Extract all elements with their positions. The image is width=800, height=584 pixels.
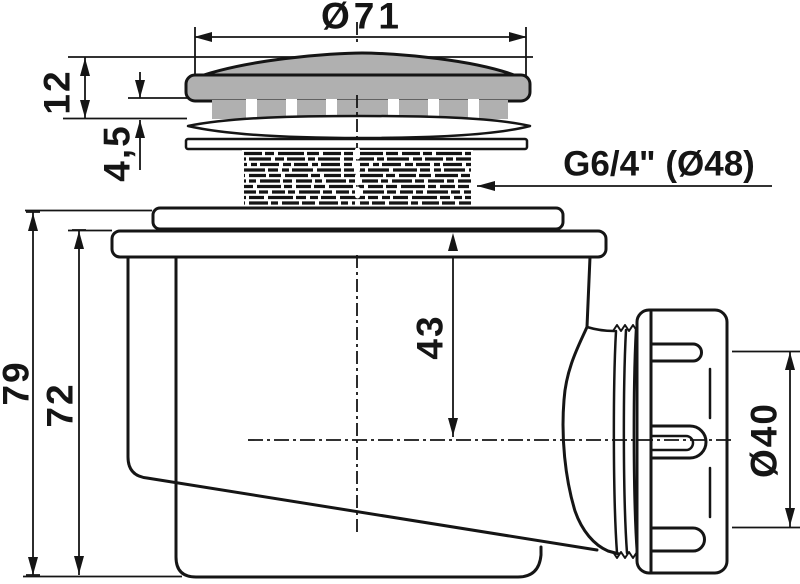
outlet-ribs: [613, 325, 637, 558]
dim-total-height-label: 79: [0, 360, 35, 405]
dim-body-height-label: 72: [42, 382, 79, 427]
cap-dome: [186, 53, 530, 101]
trap-body: [128, 257, 619, 577]
dim-thread-spec-label: G6/4" (Ø48): [563, 147, 755, 182]
dim-cap-height-label: 12: [39, 69, 76, 114]
drain-trap-line-art: [0, 0, 800, 584]
technical-drawing-canvas: Ø71 12 4,5 G6/4" (Ø48) 43 79 72 Ø40: [0, 0, 800, 584]
dim-outlet-diameter-label: Ø40: [746, 402, 783, 478]
dim-cap-diameter-label: Ø71: [321, 0, 403, 35]
thread-section: [242, 150, 473, 208]
dim-inflow-gap-label: 4,5: [99, 124, 136, 181]
body-flange: [112, 231, 606, 257]
cap-underdish: [188, 116, 530, 138]
locking-plate: [153, 208, 563, 229]
dim-axis-depth-label: 43: [412, 314, 449, 359]
outlet-connector: [637, 310, 727, 573]
